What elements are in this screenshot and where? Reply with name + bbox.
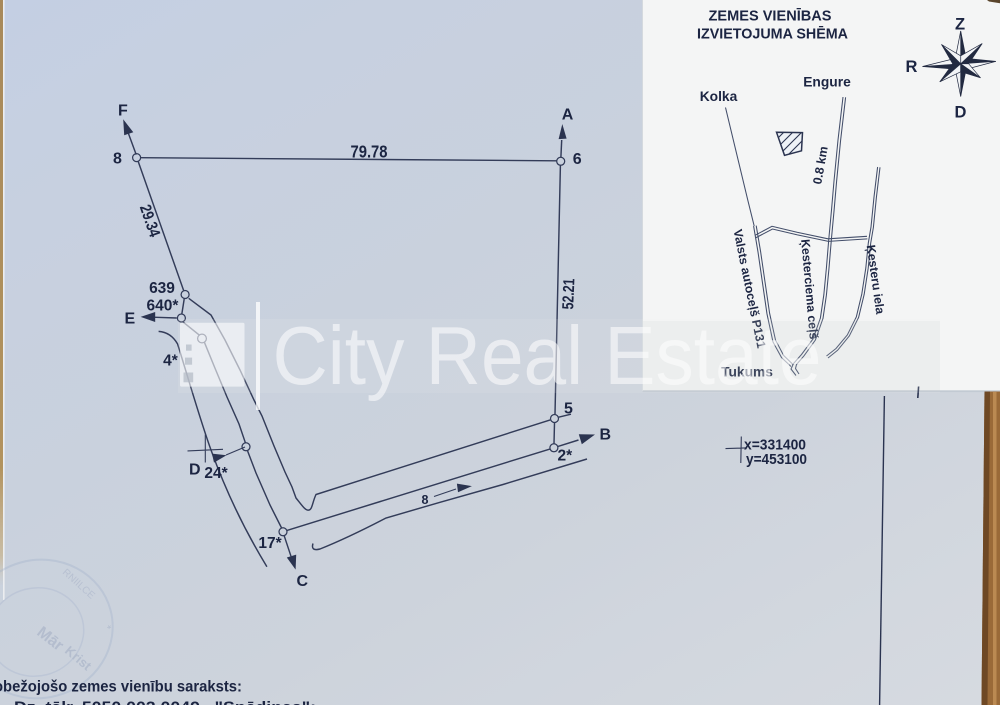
svg-text:ZEMES VIENĪBAS: ZEMES VIENĪBAS <box>709 7 832 24</box>
svg-text:A: A <box>562 107 574 124</box>
svg-text:79.78: 79.78 <box>351 142 388 162</box>
svg-text:Dz. tālr. 5050 002 0049 , "Spē: Dz. tālr. 5050 002 0049 , "Spēdiņas"; <box>14 700 316 705</box>
svg-text:6: 6 <box>573 151 582 168</box>
svg-text:640*: 640* <box>147 298 180 315</box>
svg-text:D: D <box>955 104 967 122</box>
svg-text:24*: 24* <box>204 465 228 482</box>
svg-text:Kolka: Kolka <box>700 89 738 104</box>
svg-text:D: D <box>189 462 201 479</box>
svg-text:obežojošo zemes vienību saraks: obežojošo zemes vienību saraksts: <box>0 679 242 696</box>
svg-text:8: 8 <box>422 493 429 507</box>
svg-text:Krist: Krist <box>62 643 95 674</box>
svg-text:17*: 17* <box>258 535 282 552</box>
svg-text:Z: Z <box>955 16 965 34</box>
svg-text:52.21: 52.21 <box>560 278 578 310</box>
svg-text:C: C <box>297 573 309 590</box>
svg-text:5: 5 <box>564 401 573 418</box>
svg-text:R: R <box>906 58 918 76</box>
svg-text:F: F <box>118 103 128 120</box>
svg-text:4*: 4* <box>163 353 179 370</box>
svg-text:8: 8 <box>113 151 122 168</box>
svg-text:639: 639 <box>149 280 175 297</box>
svg-text:Engure: Engure <box>803 75 851 90</box>
svg-text:Mār: Mār <box>34 624 67 655</box>
svg-text:2*: 2* <box>558 448 574 465</box>
svg-text:E: E <box>125 311 136 328</box>
svg-text:IZVIETOJUMA SHĒMA: IZVIETOJUMA SHĒMA <box>697 25 848 42</box>
svg-text:y=453100: y=453100 <box>746 451 807 468</box>
svg-text:City Real Estate: City Real Estate <box>273 309 822 402</box>
svg-text:29.34: 29.34 <box>136 203 163 240</box>
svg-text:B: B <box>600 427 612 444</box>
